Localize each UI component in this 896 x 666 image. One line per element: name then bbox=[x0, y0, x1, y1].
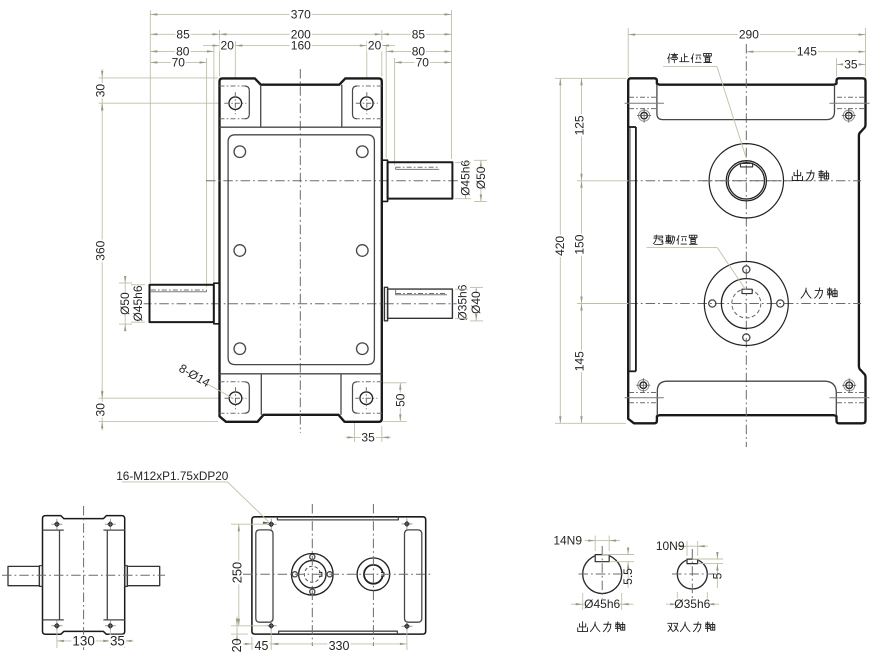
svg-text:30: 30 bbox=[94, 403, 108, 417]
svg-text:10N9: 10N9 bbox=[656, 539, 685, 553]
svg-text:250: 250 bbox=[230, 562, 245, 583]
svg-text:145: 145 bbox=[797, 45, 817, 59]
svg-text:Ø35h6: Ø35h6 bbox=[455, 284, 469, 320]
svg-text:Ø45h6: Ø45h6 bbox=[459, 160, 473, 196]
svg-text:Ø35h6: Ø35h6 bbox=[674, 597, 710, 611]
svg-text:420: 420 bbox=[553, 236, 567, 256]
svg-text:5.5: 5.5 bbox=[621, 568, 635, 585]
svg-text:20: 20 bbox=[368, 39, 382, 53]
svg-text:70: 70 bbox=[172, 55, 186, 69]
svg-text:Ø45h6: Ø45h6 bbox=[584, 597, 620, 611]
svg-text:360: 360 bbox=[94, 240, 108, 260]
svg-text:50: 50 bbox=[394, 393, 408, 407]
svg-text:125: 125 bbox=[572, 115, 586, 135]
svg-text:290: 290 bbox=[739, 28, 759, 42]
svg-text:5: 5 bbox=[710, 572, 724, 579]
svg-text:130: 130 bbox=[72, 633, 94, 648]
svg-text:30: 30 bbox=[94, 84, 108, 98]
svg-text:14N9: 14N9 bbox=[553, 534, 582, 548]
svg-text:70: 70 bbox=[416, 55, 430, 69]
svg-text:Ø45h6: Ø45h6 bbox=[131, 285, 145, 321]
svg-text:85: 85 bbox=[176, 27, 190, 41]
svg-text:370: 370 bbox=[291, 7, 311, 21]
svg-text:150: 150 bbox=[572, 234, 586, 254]
svg-text:160: 160 bbox=[291, 39, 311, 53]
svg-text:145: 145 bbox=[572, 351, 586, 371]
svg-text:35: 35 bbox=[361, 430, 375, 444]
svg-text:85: 85 bbox=[412, 27, 426, 41]
svg-text:Ø50: Ø50 bbox=[474, 166, 488, 189]
svg-text:20: 20 bbox=[230, 638, 244, 652]
svg-text:20: 20 bbox=[221, 39, 235, 53]
svg-text:35: 35 bbox=[110, 633, 125, 648]
svg-text:16-M12xP1.75xDP20: 16-M12xP1.75xDP20 bbox=[116, 469, 229, 483]
svg-text:330: 330 bbox=[329, 639, 350, 653]
svg-text:45: 45 bbox=[255, 639, 269, 653]
svg-text:Ø40: Ø40 bbox=[469, 291, 483, 314]
svg-text:35: 35 bbox=[844, 57, 858, 71]
